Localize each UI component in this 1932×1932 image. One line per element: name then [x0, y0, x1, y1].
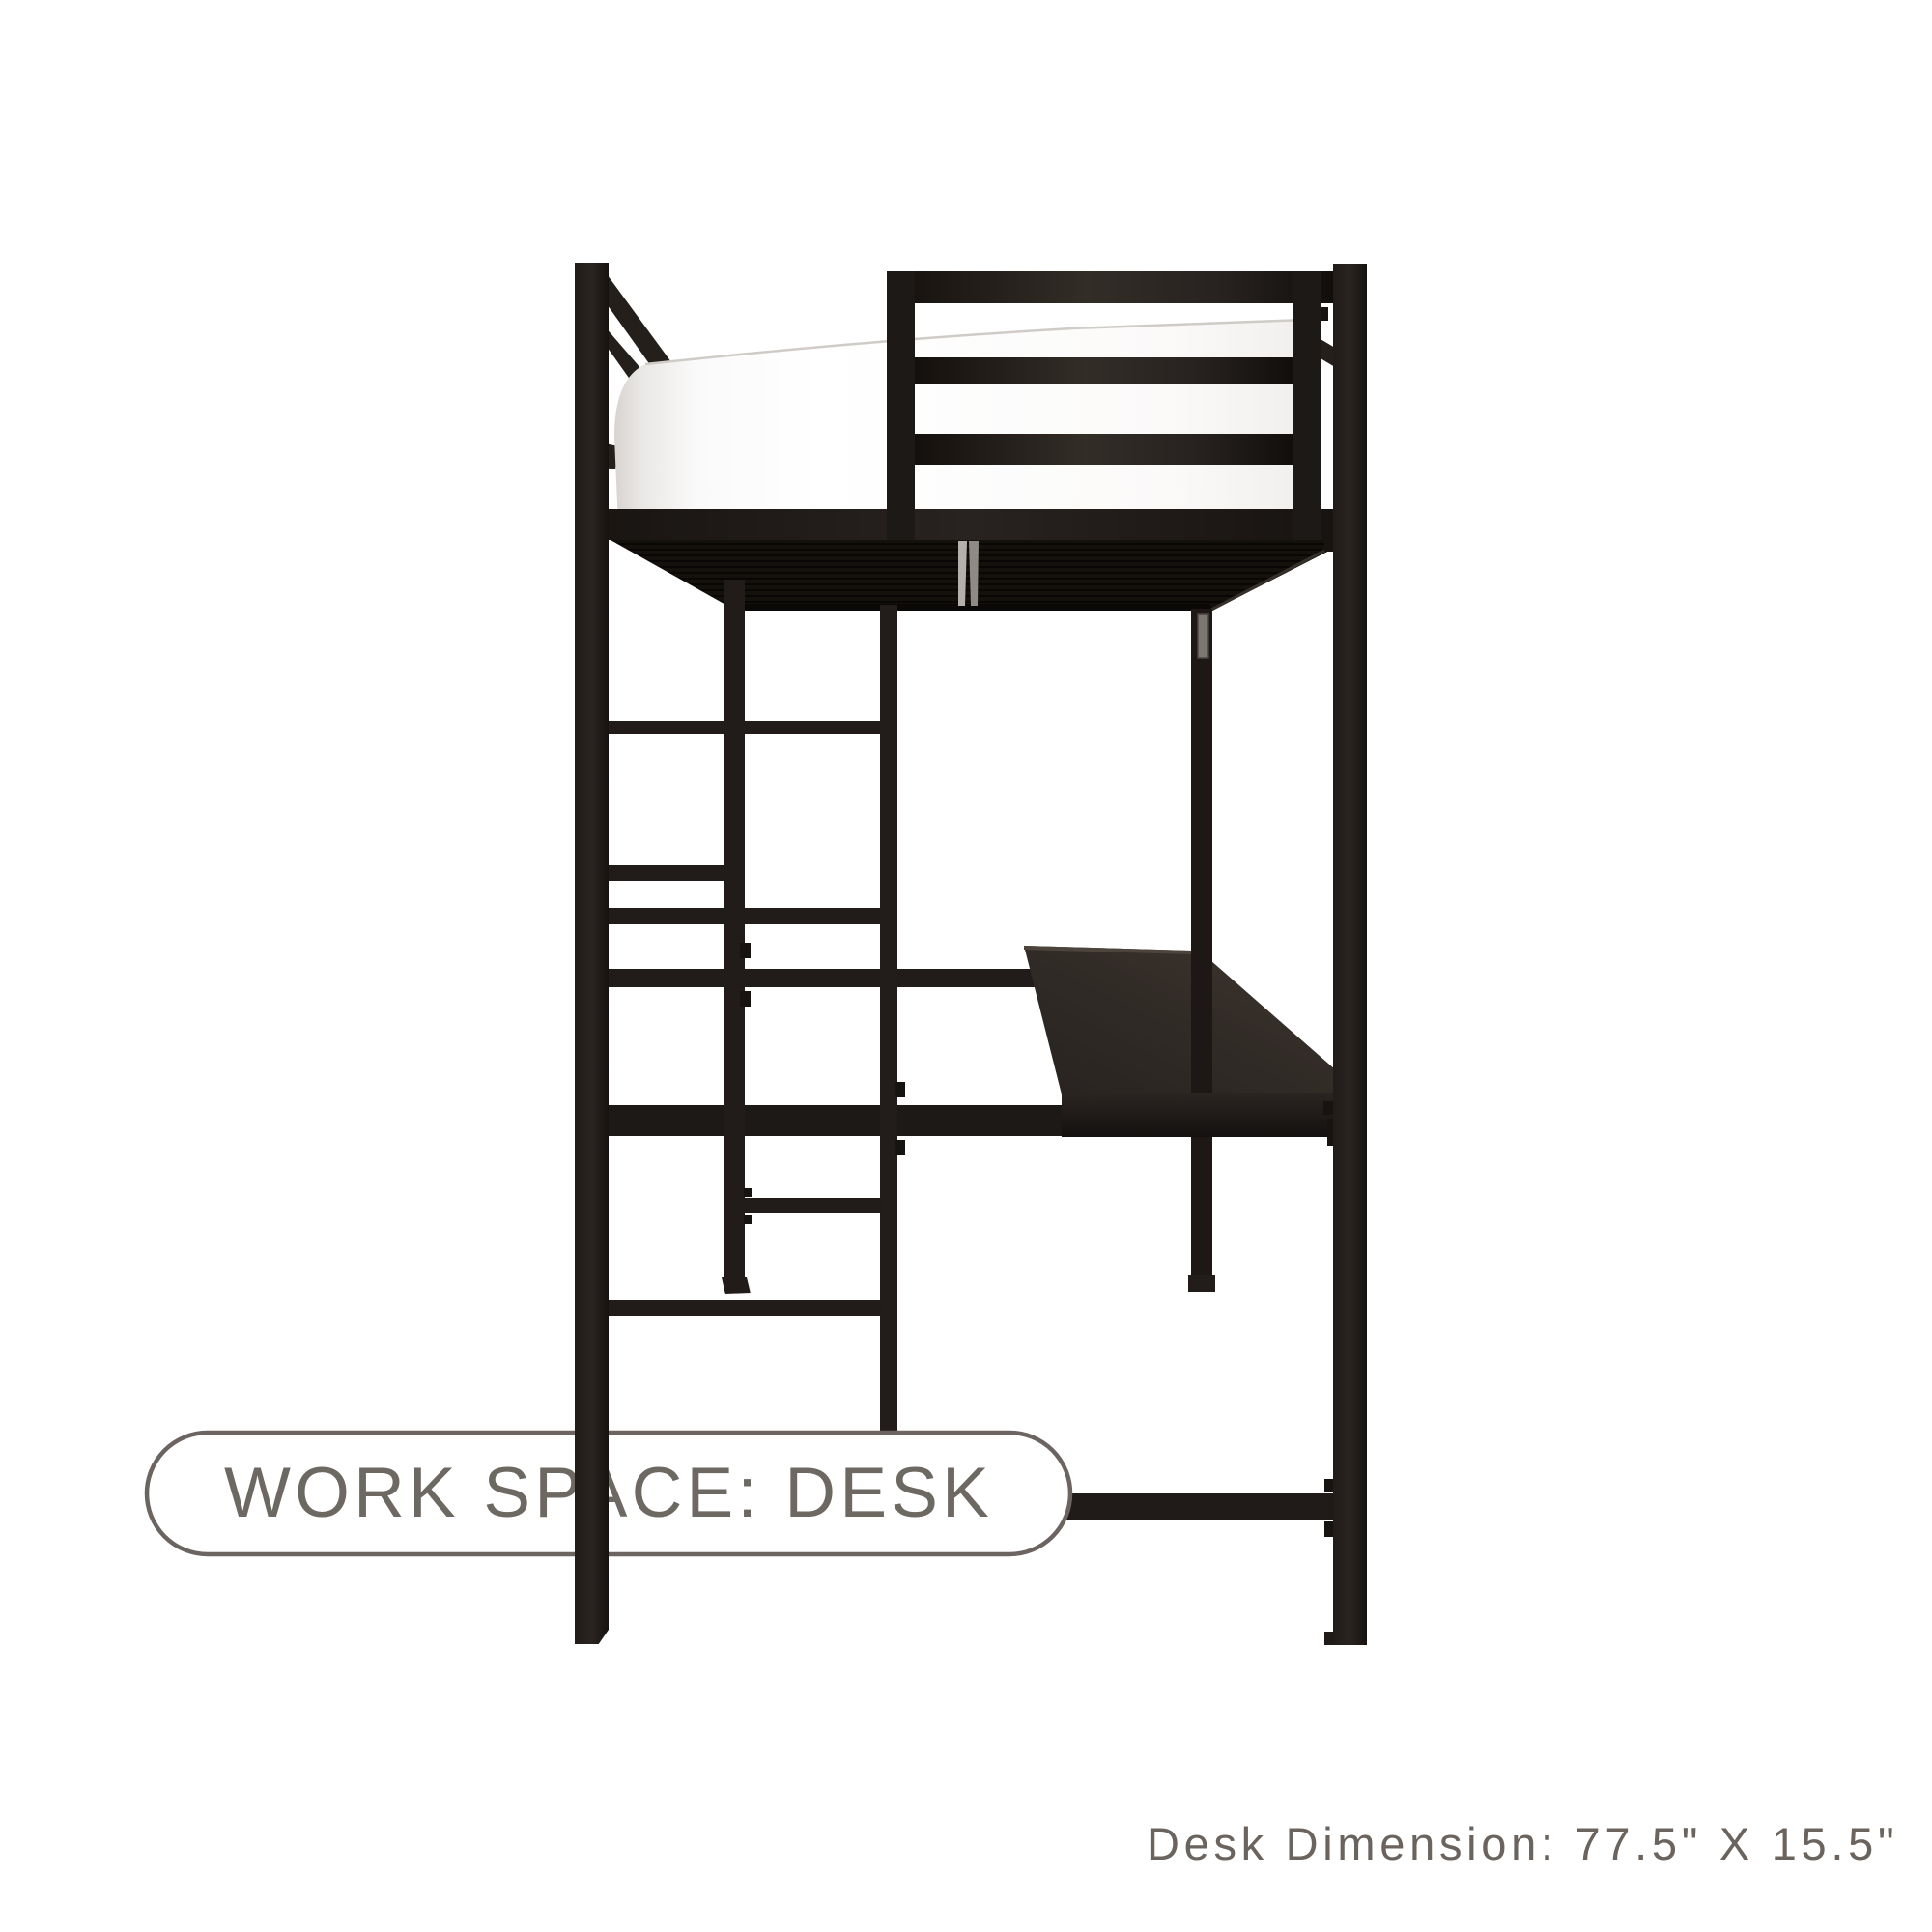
svg-text:Desk Dimension: 77.5" X 15.5": Desk Dimension: 77.5" X 15.5"	[1147, 1818, 1898, 1869]
